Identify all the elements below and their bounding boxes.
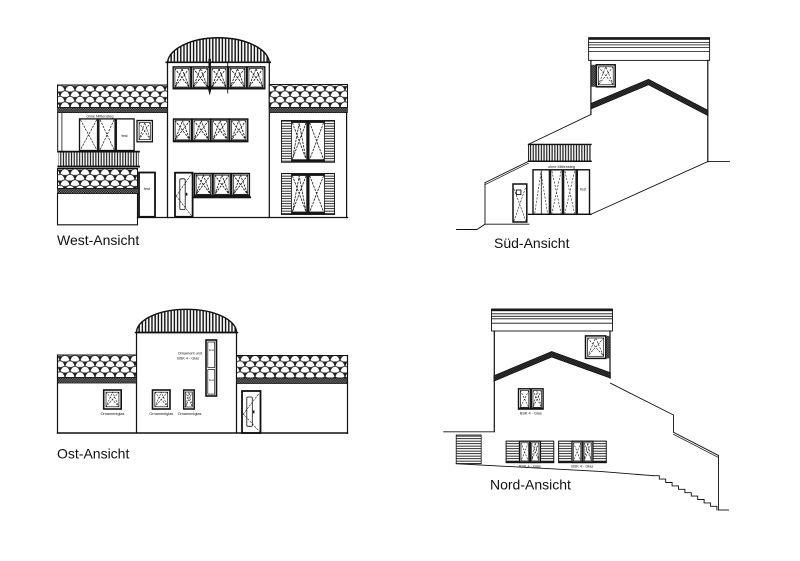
svg-text:Süd-Ansicht: Süd-Ansicht: [494, 235, 570, 251]
svg-text:Nord-Ansicht: Nord-Ansicht: [490, 477, 571, 493]
svg-text:BSK 4 - Glas: BSK 4 - Glas: [177, 356, 199, 360]
svg-text:ohne Mittensteg: ohne Mittensteg: [548, 165, 575, 169]
svg-text:fest: fest: [580, 188, 587, 192]
svg-text:BSK 4 - Glas: BSK 4 - Glas: [520, 411, 542, 415]
svg-text:fest: fest: [121, 134, 128, 138]
svg-text:Ost-Ansicht: Ost-Ansicht: [57, 446, 129, 462]
svg-text:ohne Mittensteg: ohne Mittensteg: [86, 115, 113, 119]
svg-text:Ornamentglas: Ornamentglas: [149, 412, 173, 416]
svg-text:fest: fest: [209, 378, 214, 382]
svg-text:West-Ansicht: West-Ansicht: [57, 232, 139, 248]
svg-text:BSK 4 - Glas: BSK 4 - Glas: [571, 464, 593, 468]
svg-text:fest: fest: [144, 187, 151, 191]
svg-text:Ornament und: Ornament und: [178, 352, 202, 356]
svg-text:Ornamentglas: Ornamentglas: [178, 412, 202, 416]
svg-text:Ornamentglas: Ornamentglas: [101, 412, 125, 416]
svg-text:fest: fest: [209, 348, 214, 352]
